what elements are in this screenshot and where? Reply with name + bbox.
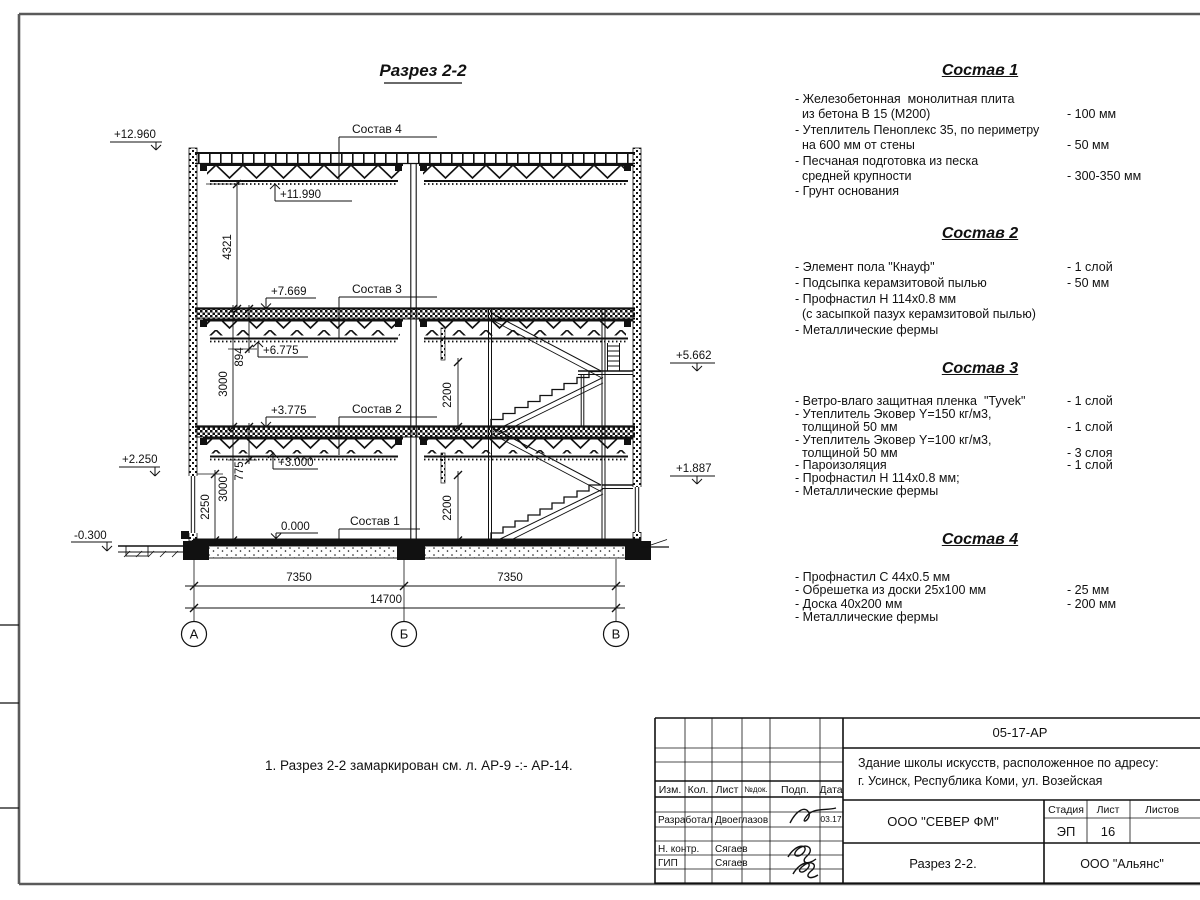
svg-text:Разработал: Разработал	[658, 814, 713, 826]
svg-text:Н. контр.: Н. контр.	[658, 844, 699, 855]
svg-text:894: 894	[234, 347, 246, 367]
comp-title-2: Состав 2	[795, 225, 1165, 243]
sheet-note: 1. Разрез 2-2 замаркирован см. л. АР-9 -…	[265, 758, 573, 773]
svg-text:ООО "Альянс": ООО "Альянс"	[1080, 857, 1164, 871]
composition-callouts	[339, 137, 437, 544]
comp-row: средней крупности- 300-350 мм	[795, 169, 1165, 184]
axis-a: А	[190, 627, 199, 642]
svg-text:+3.000: +3.000	[278, 457, 314, 469]
comp-row: - Профнастил Н 114х0.8 мм;	[795, 471, 1165, 484]
svg-text:Изм.: Изм.	[659, 784, 682, 796]
svg-text:Подп.: Подп.	[781, 784, 809, 796]
comp-row: - Металлические фермы	[795, 323, 1165, 339]
comp-row: - Профнастил С 44х0.5 мм	[795, 570, 1165, 583]
stair-flight	[491, 372, 601, 426]
ladder	[608, 343, 620, 371]
svg-text:ООО "СЕВЕР ФМ": ООО "СЕВЕР ФМ"	[887, 814, 999, 829]
comp-row: из бетона В 15 (М200)- 100 мм	[795, 107, 1165, 122]
svg-text:Кол.: Кол.	[688, 784, 709, 796]
comp-row: - Обрешетка из доски 25х100 мм- 25 мм	[795, 583, 1165, 596]
roof	[195, 153, 635, 184]
svg-text:№док.: №док.	[744, 785, 767, 794]
comp-title-1: Состав 1	[795, 62, 1165, 80]
svg-text:Состав 2: Состав 2	[352, 402, 402, 416]
svg-text:-0.300: -0.300	[74, 530, 107, 542]
svg-text:ГИП: ГИП	[658, 858, 678, 869]
svg-text:3000: 3000	[218, 371, 230, 397]
axis-b: Б	[400, 627, 409, 642]
svg-text:+2.250: +2.250	[122, 454, 158, 466]
svg-text:Лист: Лист	[1097, 804, 1120, 816]
svg-text:+12.960: +12.960	[114, 129, 156, 141]
dim-ticks	[211, 180, 462, 545]
comp-row: толщиной 50 мм- 1 слой	[795, 420, 1165, 433]
signature-ncontr	[788, 846, 816, 863]
comp-row: (с засыпкой пазух керамзитовой пылью)	[795, 307, 1165, 323]
svg-text:Стадия: Стадия	[1048, 804, 1084, 816]
column-middle	[411, 164, 416, 540]
svg-text:0.000: 0.000	[281, 521, 310, 533]
comp-row: - Доска 40х200 мм- 200 мм	[795, 597, 1165, 610]
svg-text:ЭП: ЭП	[1057, 824, 1076, 839]
comp-section-2: Состав 2 - Элемент пола "Кнауф"- 1 слой …	[795, 225, 1165, 339]
compositions-panel: Состав 1 - Железобетонная монолитная пли…	[795, 0, 1165, 700]
svg-text:Состав 3: Состав 3	[352, 282, 402, 296]
comp-row: - Грунт основания	[795, 184, 1165, 199]
dim-7350-left: 7350	[286, 572, 312, 584]
dim-14700: 14700	[370, 594, 402, 606]
section-title: Разрез 2-2	[379, 61, 467, 80]
floor-3	[195, 309, 635, 342]
svg-text:+5.662: +5.662	[676, 350, 712, 362]
svg-text:3000: 3000	[218, 476, 230, 502]
comp-row: - Подсыпка керамзитовой пылью- 50 мм	[795, 276, 1165, 292]
axis-v: В	[612, 627, 621, 642]
svg-text:2200: 2200	[442, 382, 454, 408]
svg-text:+6.775: +6.775	[263, 345, 299, 357]
svg-text:2200: 2200	[442, 495, 454, 521]
svg-text:05-17-АР: 05-17-АР	[993, 725, 1048, 740]
svg-text:Сягаев: Сягаев	[715, 844, 748, 855]
comp-row: - Элемент пола "Кнауф"- 1 слой	[795, 260, 1165, 276]
dim-7350-right: 7350	[497, 572, 523, 584]
svg-text:2250: 2250	[200, 494, 212, 520]
comp-title-4: Состав 4	[795, 531, 1165, 549]
svg-text:Здание школы искусств, располо: Здание школы искусств, расположенное по …	[858, 756, 1159, 770]
floor-2	[195, 427, 635, 460]
svg-text:16: 16	[1101, 824, 1115, 839]
window-left	[189, 476, 198, 533]
comp-section-1: Состав 1 - Железобетонная монолитная пли…	[795, 62, 1165, 200]
comp-row: толщиной 50 мм- 3 слоя	[795, 446, 1165, 459]
svg-text:Дата: Дата	[819, 784, 842, 796]
comp-row: - Профнастил Н 114х0.8 мм	[795, 292, 1165, 308]
svg-text:Двоеглазов: Двоеглазов	[715, 815, 768, 826]
title-block: Изм. Кол. Лист №док. Подп. Дата Разработ…	[655, 718, 1200, 884]
comp-section-4: Состав 4 - Профнастил С 44х0.5 мм - Обре…	[795, 531, 1165, 624]
comp-row: - Металлические фермы	[795, 610, 1165, 623]
comp-row: - Ветро-влаго защитная пленка "Tyvek"- 1…	[795, 394, 1165, 407]
svg-text:+11.990: +11.990	[280, 189, 321, 201]
svg-text:г. Усинск, Республика Коми, ул: г. Усинск, Республика Коми, ул. Возейска…	[858, 774, 1102, 788]
comp-row: - Пароизоляция- 1 слой	[795, 458, 1165, 471]
svg-text:Сягаев: Сягаев	[715, 858, 748, 869]
svg-text:4321: 4321	[222, 234, 234, 260]
wall-right	[633, 148, 641, 541]
svg-text:Разрез 2-2.: Разрез 2-2.	[909, 856, 976, 871]
comp-row: - Песчаная подготовка из песка	[795, 154, 1165, 169]
comp-row: на 600 мм от стены- 50 мм	[795, 138, 1165, 153]
comp-section-3: Состав 3 - Ветро-влаго защитная пленка "…	[795, 360, 1165, 497]
window-right	[633, 487, 642, 532]
svg-text:Лист: Лист	[716, 784, 739, 796]
axis-bubbles: А Б В	[182, 622, 629, 647]
comp-row: - Утеплитель Эковер Y=150 кг/м3,	[795, 407, 1165, 420]
svg-text:775: 775	[234, 461, 246, 480]
svg-text:Листов: Листов	[1145, 804, 1180, 816]
margin-marks	[0, 625, 19, 808]
svg-text:Состав 1: Состав 1	[350, 514, 400, 528]
comp-title-3: Состав 3	[795, 360, 1165, 378]
comp-row: - Утеплитель Эковер Y=100 кг/м3,	[795, 433, 1165, 446]
stair-flight	[491, 485, 601, 539]
svg-text:+7.669: +7.669	[271, 286, 307, 298]
svg-text:Состав 4: Состав 4	[352, 122, 402, 136]
title-block-text: Изм. Кол. Лист №док. Подп. Дата Разработ…	[658, 725, 1179, 871]
signature-gip	[793, 863, 818, 878]
ground-slab	[118, 531, 669, 560]
svg-text:+3.775: +3.775	[271, 405, 307, 417]
drawing-sheet: Разрез 2-2	[0, 0, 1200, 900]
bottom-dimensions	[185, 559, 625, 621]
comp-row: - Утеплитель Пеноплекс 35, по периметру	[795, 123, 1165, 138]
svg-text:+1.887: +1.887	[676, 463, 712, 475]
svg-text:03.17: 03.17	[820, 814, 842, 824]
comp-row: - Железобетонная монолитная плита	[795, 92, 1165, 107]
comp-row: - Металлические фермы	[795, 484, 1165, 497]
